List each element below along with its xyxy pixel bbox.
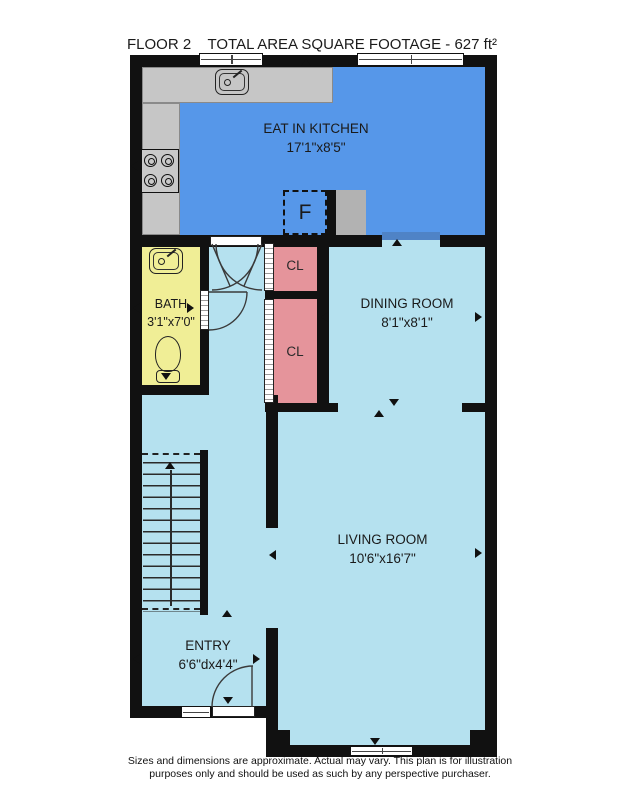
room-label-kitchen: EAT IN KITCHEN 17'1"x8'5": [226, 120, 406, 158]
dim-arrow-toilet: [161, 373, 171, 380]
room-label-entry: ENTRY 6'6"dx4'4": [148, 637, 268, 675]
disclaimer-line2: purposes only and should be used as such…: [60, 768, 580, 781]
dim-arrow-living-right: [475, 548, 482, 558]
dining-dims: 8'1"x8'1": [329, 314, 485, 333]
entry-name: ENTRY: [148, 637, 268, 656]
dim-arrow-dining-left: [321, 312, 328, 322]
dim-arrow-dining-bottom: [389, 399, 399, 406]
dim-arrow-entry-top: [222, 610, 232, 617]
dim-arrow-living-bottom: [370, 738, 380, 745]
dim-arrow-living-left: [269, 550, 276, 560]
room-label-dining: DINING ROOM 8'1"x8'1": [329, 295, 485, 333]
dim-arrow-kitchen-top: [301, 59, 311, 66]
dining-name: DINING ROOM: [329, 295, 485, 314]
entry-dims: 6'6"dx4'4": [148, 656, 268, 675]
bath-name: BATH: [138, 296, 204, 314]
disclaimer: Sizes and dimensions are approximate. Ac…: [60, 755, 580, 780]
room-label-bath: BATH 3'1"x7'0": [138, 296, 204, 331]
closet-upper-label: CL: [283, 258, 307, 273]
disclaimer-line1: Sizes and dimensions are approximate. Ac…: [60, 755, 580, 768]
dim-arrow-kitchen-left: [131, 161, 138, 171]
kitchen-name: EAT IN KITCHEN: [226, 120, 406, 139]
closet-lower-label: CL: [283, 344, 307, 359]
bath-dims: 3'1"x7'0": [138, 314, 204, 332]
living-dims: 10'6"x16'7": [290, 550, 475, 569]
floor-plan-page: FLOOR 2 TOTAL AREA SQUARE FOOTAGE - 627 …: [0, 0, 643, 808]
dim-arrow-entry-bottom: [223, 697, 233, 704]
kitchen-dims: 17'1"x8'5": [226, 139, 406, 158]
room-label-living: LIVING ROOM 10'6"x16'7": [290, 531, 475, 569]
dim-arrow-entry-left: [133, 654, 140, 664]
living-name: LIVING ROOM: [290, 531, 475, 550]
dim-arrow-dining-top: [392, 239, 402, 246]
dim-arrow-living-top: [374, 410, 384, 417]
